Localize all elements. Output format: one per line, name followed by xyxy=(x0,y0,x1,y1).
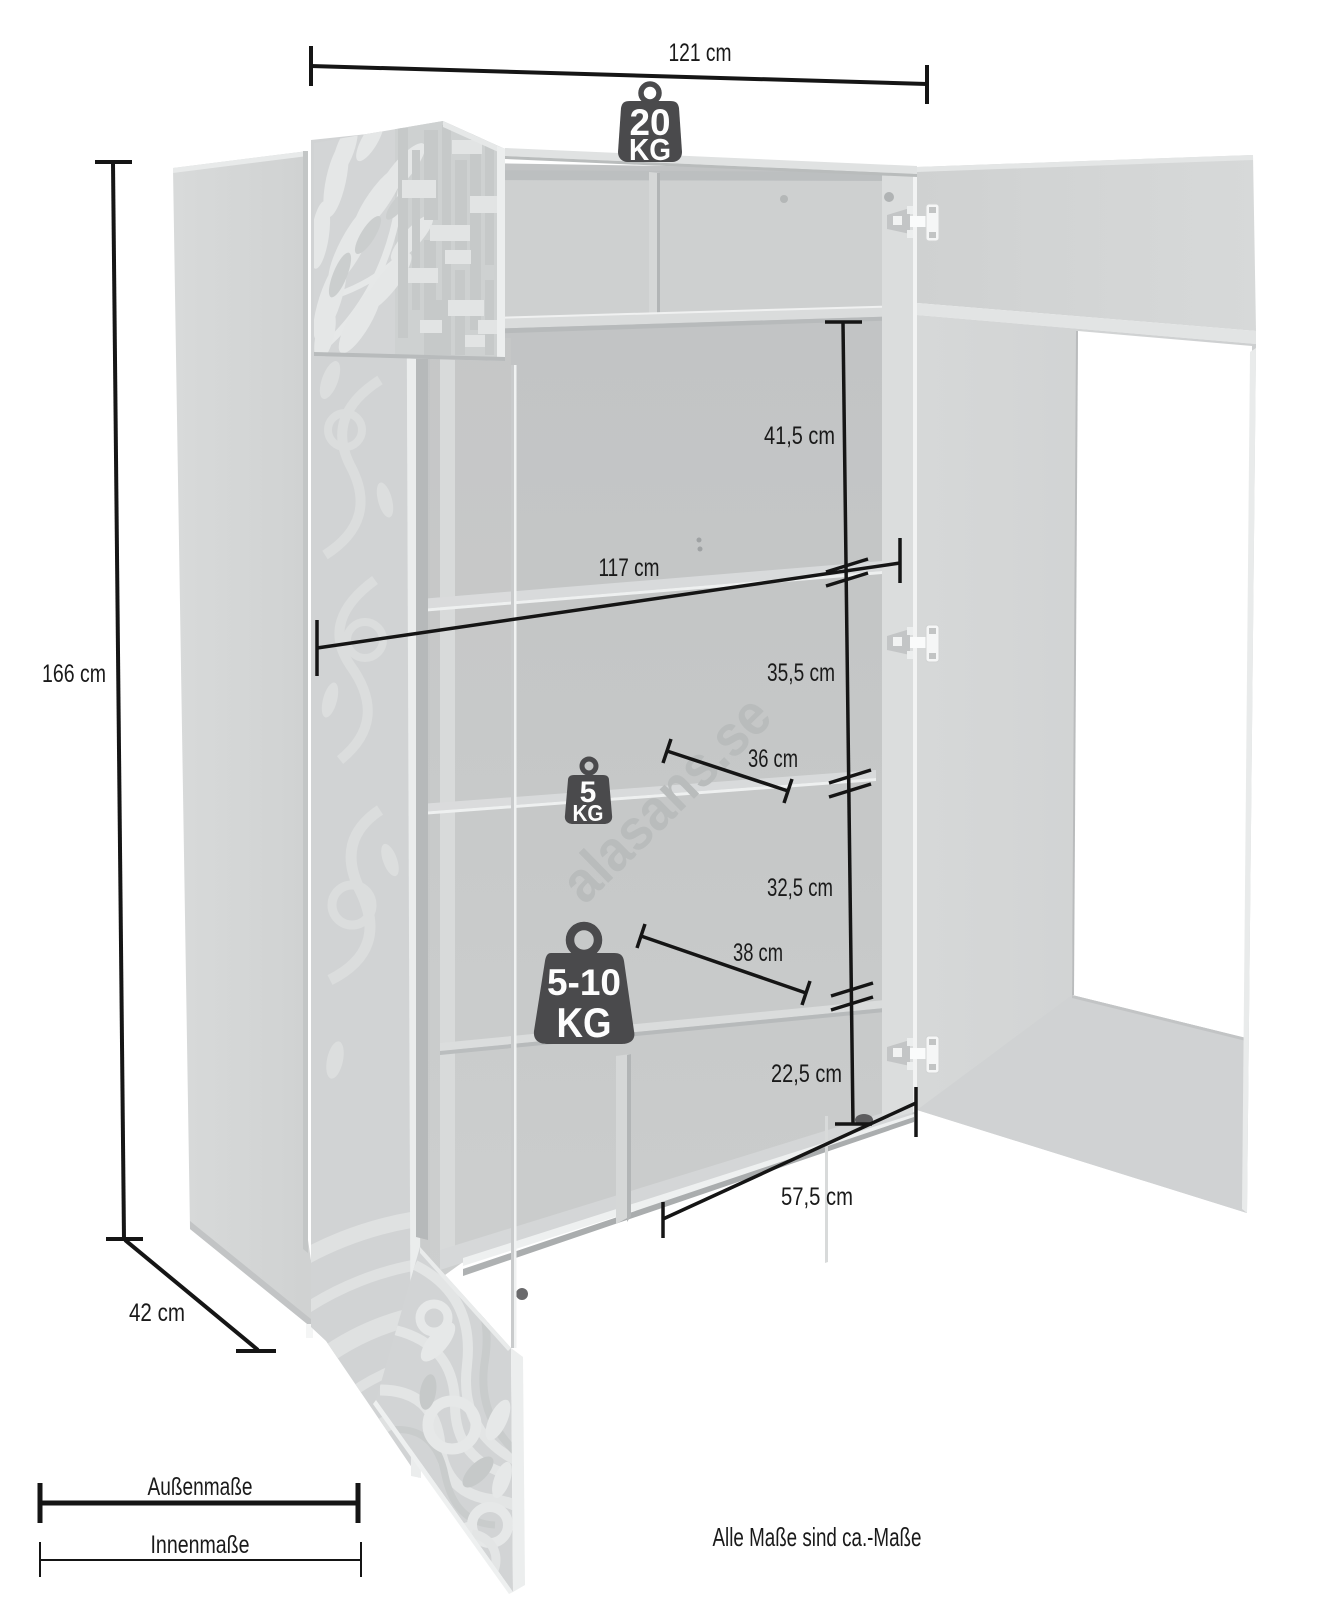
svg-text:42 cm: 42 cm xyxy=(129,1299,185,1327)
svg-text:KG: KG xyxy=(557,999,612,1046)
svg-text:KG: KG xyxy=(629,132,671,167)
svg-text:36 cm: 36 cm xyxy=(748,745,798,773)
svg-text:Außenmaße: Außenmaße xyxy=(148,1473,253,1501)
svg-text:22,5 cm: 22,5 cm xyxy=(771,1060,842,1088)
svg-text:166 cm: 166 cm xyxy=(42,660,106,688)
svg-text:KG: KG xyxy=(573,800,604,826)
svg-text:121 cm: 121 cm xyxy=(669,39,732,67)
svg-text:117 cm: 117 cm xyxy=(599,554,660,582)
svg-text:Innenmaße: Innenmaße xyxy=(151,1531,250,1559)
svg-text:5-10: 5-10 xyxy=(547,962,621,1003)
svg-text:Alle Maße sind ca.-Maße: Alle Maße sind ca.-Maße xyxy=(713,1522,922,1552)
svg-text:41,5 cm: 41,5 cm xyxy=(764,422,835,450)
svg-text:35,5 cm: 35,5 cm xyxy=(767,659,835,687)
svg-text:57,5 cm: 57,5 cm xyxy=(781,1183,853,1211)
svg-text:32,5 cm: 32,5 cm xyxy=(767,874,833,902)
svg-text:38 cm: 38 cm xyxy=(733,939,783,967)
